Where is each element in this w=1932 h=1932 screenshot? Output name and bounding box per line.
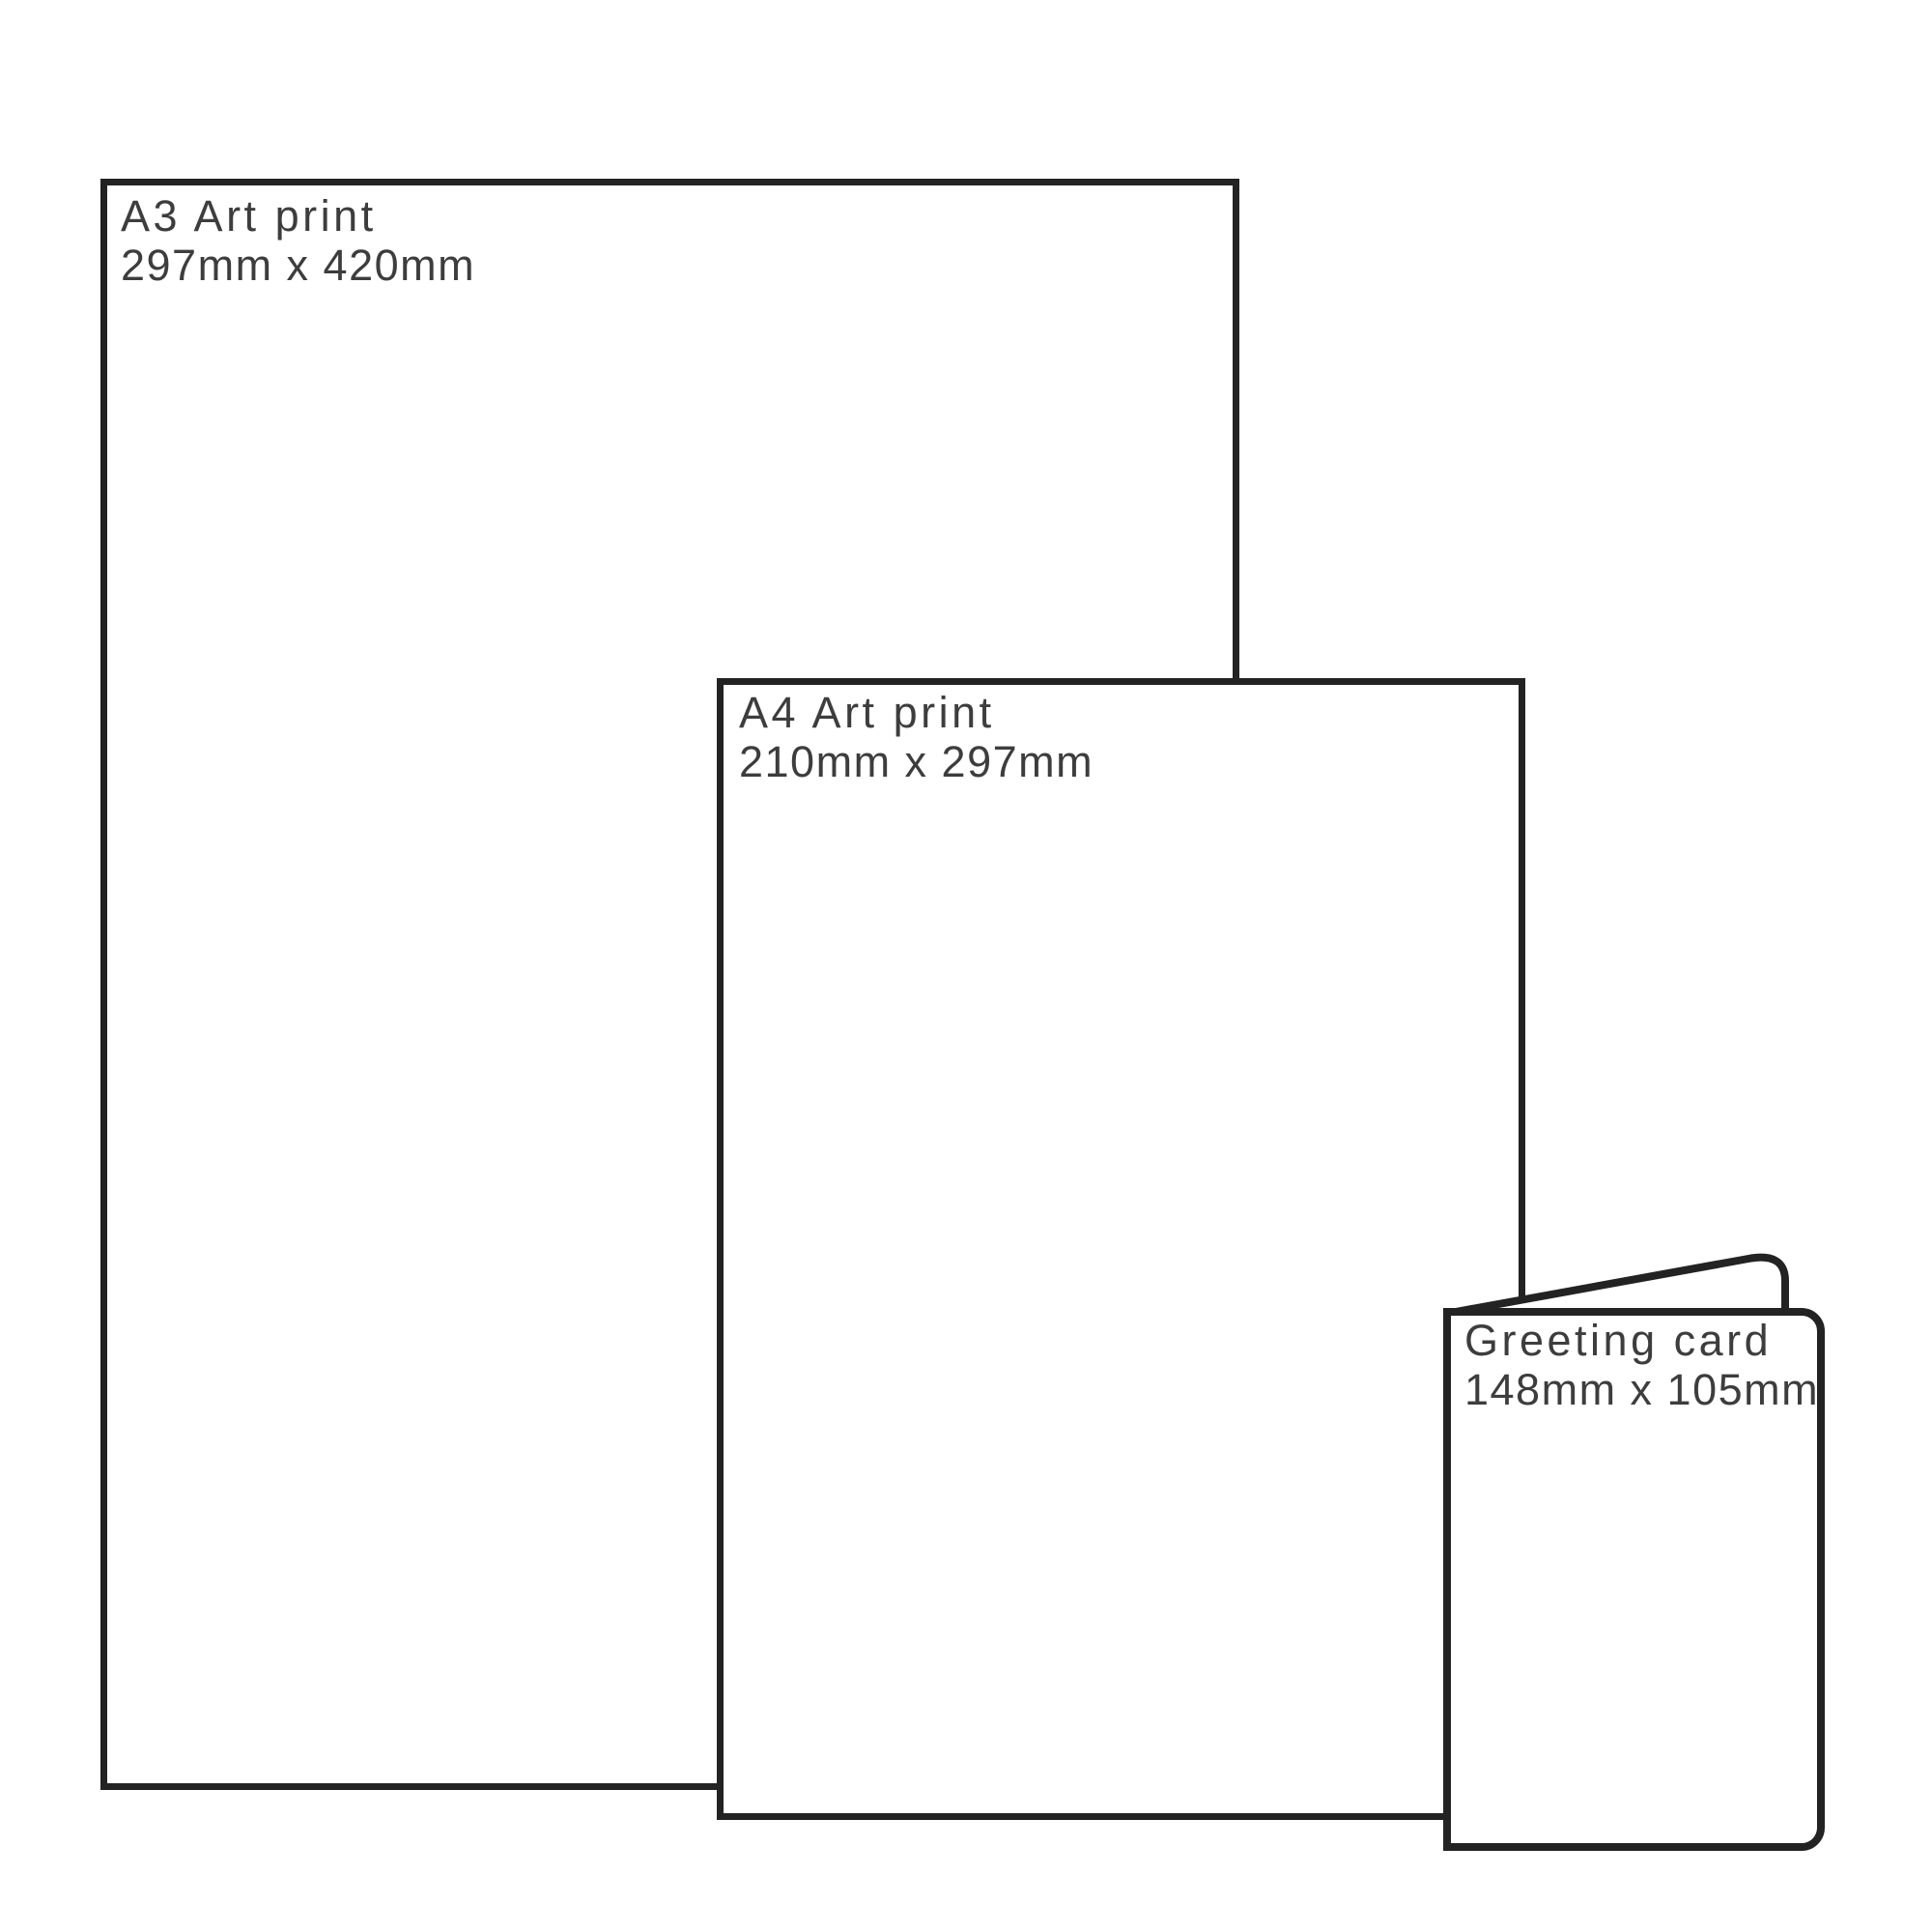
a3-dimensions: 297mm x 420mm: [121, 241, 475, 290]
a4-label: A4 Art print 210mm x 297mm: [739, 688, 1094, 786]
greeting-card-dimensions: 148mm x 105mm: [1464, 1366, 1819, 1414]
a3-title: A3 Art print: [121, 191, 475, 241]
greeting-card-title: Greeting card: [1464, 1316, 1819, 1366]
greeting-card-label: Greeting card 148mm x 105mm: [1464, 1316, 1819, 1414]
a4-dimensions: 210mm x 297mm: [739, 738, 1094, 786]
a4-print-outline: [717, 678, 1525, 1820]
a4-title: A4 Art print: [739, 688, 1094, 738]
a3-label: A3 Art print 297mm x 420mm: [121, 191, 475, 290]
size-comparison-diagram: A3 Art print 297mm x 420mm A4 Art print …: [0, 0, 1932, 1932]
